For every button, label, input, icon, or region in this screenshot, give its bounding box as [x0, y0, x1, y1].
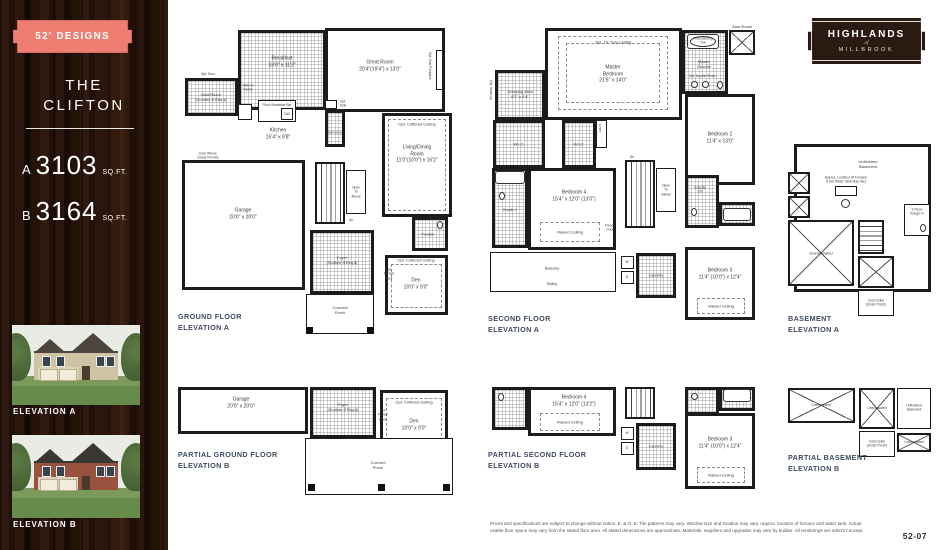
- rough-in-label: 3 Piece Rough-In: [910, 208, 924, 217]
- dressing-area-label: Dressing Area 8'2" x 6'4": [507, 89, 532, 99]
- sidebar: 52' DESIGNS THE CLIFTON A 3103 SQ.FT. B …: [0, 0, 168, 550]
- bedroom-4-label: Bedroom 4 15'4" x 12'0" (13'0"): [552, 190, 595, 203]
- unexcavated-area: [858, 256, 894, 288]
- designs-badge-label: 52' DESIGNS: [35, 31, 110, 42]
- window: [106, 466, 115, 477]
- raised-ceiling-label: Raised Ceiling: [708, 303, 734, 308]
- dishwasher-label: DW: [284, 112, 290, 116]
- brochure-page: 52' DESIGNS THE CLIFTON A 3103 SQ.FT. B …: [0, 0, 941, 550]
- unexcavated-area: [788, 172, 810, 194]
- window: [42, 466, 51, 477]
- unexcavated-label: Unexcavated: [904, 440, 923, 444]
- furnace-label: Approx. Location Of Furnace & Hot Water …: [825, 176, 867, 185]
- sqft-spec-a: A 3103 SQ.FT.: [22, 150, 127, 181]
- sqft-value: 3164: [36, 196, 98, 227]
- window: [96, 466, 105, 477]
- linen-label: Linen: [598, 124, 602, 132]
- plan-basement-a: Unfinished Basement Approx. Location Of …: [788, 142, 936, 342]
- furnace: [835, 186, 857, 196]
- unfinished-basement-label: Unfinished Basement: [906, 404, 922, 413]
- stairs-up: [315, 162, 345, 224]
- living-dining-label: Living/Dining Room 11'0"(10'0") x 16'2": [396, 144, 437, 164]
- master-bedroom-label: Master Bedroom 21'6" x 14'0": [599, 64, 626, 84]
- toilet: [437, 221, 443, 229]
- sink: [702, 81, 709, 88]
- logo-line3: MILLBROOK: [839, 47, 895, 53]
- toilet: [920, 224, 926, 232]
- tree-illustration: [12, 443, 31, 491]
- den-label: Den 10'0" x 9'0": [402, 419, 427, 432]
- sqft-unit: SQ.FT.: [103, 215, 128, 222]
- raised-ceiling-label: Raised Ceiling: [557, 419, 583, 424]
- washer-label: W: [625, 431, 628, 435]
- range: [238, 104, 252, 120]
- variant-letter: A: [22, 162, 31, 177]
- toilet: [691, 208, 697, 216]
- unexcavated-label: Unexcavated: [867, 406, 886, 410]
- window: [106, 356, 115, 367]
- stairs-down: [625, 160, 655, 228]
- variant-letter: B: [22, 208, 31, 223]
- plan-title-partial-ground-b: PARTIAL GROUND FLOOR ELEVATION B: [178, 450, 278, 472]
- glass-shower: [729, 30, 755, 55]
- ensuite-4: [492, 387, 528, 430]
- tree-illustration: [121, 443, 140, 491]
- unfinished-basement-label: Unfinished Basement: [859, 159, 878, 169]
- sqft-unit: SQ.FT.: [103, 169, 128, 176]
- plan-partial-second-b: Bedroom 4 15'4" x 12'0" (13'2") Raised C…: [488, 383, 780, 510]
- bedroom-3-label: Bedroom 3 11'4" (10'0") x 12'4": [699, 437, 742, 450]
- roof-gable: [34, 339, 66, 353]
- tub: [723, 389, 751, 402]
- elevation-b-label: ELEVATION B: [13, 520, 77, 529]
- foyer-label: Foyer (Sunken If Req'd): [326, 255, 357, 265]
- great-room-label: Great Room 20'4"(19'4") x 13'0": [359, 60, 401, 73]
- dryer-label: D: [626, 275, 628, 279]
- front-door: [82, 366, 90, 380]
- divider-line: [26, 128, 134, 129]
- double-sinks-label: Opt. Double Sinks: [689, 74, 716, 78]
- tree-illustration: [121, 333, 140, 381]
- makeup-label: Opt. Make-up: [489, 80, 493, 100]
- up-label: Up: [349, 218, 353, 222]
- island-label: Flush Breakfast Bar: [263, 103, 292, 107]
- open-to-below-label: Open To Below: [662, 184, 671, 197]
- ensuite-4-label: Ensuite 4: [503, 208, 517, 212]
- french-door-label: French Door: [605, 224, 615, 233]
- master-ensuite-label: Master Ensuite: [697, 59, 710, 69]
- unexcavated-label: Unexcavated: [811, 403, 830, 407]
- dryer-label: D: [626, 446, 628, 450]
- french-door-label: Opt. French Door: [384, 268, 394, 281]
- tub: [723, 208, 751, 221]
- water-heater: [841, 199, 850, 208]
- den-label: Den 10'0" x 9'0": [404, 278, 429, 291]
- opt-door-label: Opt. Door: [201, 72, 215, 76]
- balcony-label: Balcony: [545, 265, 559, 270]
- glass-shower-label: Glass Shower: [732, 25, 753, 29]
- unexcavated-label: Unexcavated: [809, 250, 832, 255]
- porch-post: [306, 327, 313, 334]
- french-door-label: Opt. French Door: [378, 409, 388, 422]
- bedroom-4-label: Bedroom 4 15'4" x 12'0" (13'2"): [552, 395, 595, 408]
- tub: [495, 171, 525, 184]
- laundry-label: Laundry: [649, 272, 663, 277]
- porch-label: Covered Porch: [332, 305, 347, 315]
- designs-badge: 52' DESIGNS: [13, 20, 132, 53]
- ensuite-2-3-label: Ensuite 2/3: [695, 186, 706, 195]
- toilet: [499, 192, 505, 200]
- plan-title-basement-a: BASEMENT ELEVATION A: [788, 314, 839, 336]
- garage-doors: [38, 477, 78, 490]
- toilet: [498, 393, 504, 401]
- disclaimer-text: Prices and specifications are subject to…: [490, 520, 868, 534]
- cold-cellar-label: Cold Cellar (Under Porch): [867, 440, 888, 449]
- raised-ceiling-label: Raised Ceiling: [557, 229, 583, 234]
- garage: [182, 160, 305, 290]
- sqft-value: 3103: [36, 150, 98, 181]
- tray-ceiling-label: Opt. 10' Tray Ceiling: [595, 39, 631, 44]
- stairs: [625, 387, 655, 419]
- porch-post: [308, 484, 315, 491]
- plan-title-partial-second-b: PARTIAL SECOND FLOOR ELEVATION B: [488, 450, 586, 472]
- roof-gable: [34, 449, 66, 463]
- model-title: THE CLIFTON: [0, 76, 168, 117]
- fireplace: [436, 50, 443, 90]
- front-door: [82, 476, 90, 490]
- tub-label: Freestanding Tub: [693, 37, 712, 46]
- unexcavated-area: [788, 196, 810, 218]
- plan-title-partial-basement-b: PARTIAL BASEMENT ELEVATION B: [788, 453, 867, 475]
- logo-border: HIGHLANDS of MILLBROOK: [811, 21, 922, 61]
- window: [56, 466, 65, 477]
- opt-sink-label: Opt. Sink: [340, 100, 346, 109]
- open-to-above-label: Open To Above: [351, 186, 360, 199]
- ensuite-2-3: [685, 175, 719, 228]
- sink: [691, 393, 698, 400]
- bedroom-3-label: Bedroom 3 11'4" (10'0") x 12'4": [699, 268, 742, 281]
- porch-post: [378, 484, 385, 491]
- coffered-ceiling-outline: [388, 119, 446, 211]
- plan-title-ground-a: GROUND FLOOR ELEVATION A: [178, 312, 242, 334]
- window: [42, 356, 51, 367]
- porch-post: [367, 327, 374, 334]
- plan-ground-floor-a: Opt. Gas Fireplace Great Room 20'4"(19'4…: [178, 12, 466, 337]
- sink: [691, 81, 698, 88]
- highlands-millbrook-logo: HIGHLANDS of MILLBROOK: [808, 18, 925, 64]
- fireplace-label: Opt. Gas Fireplace: [428, 52, 432, 80]
- powder-label: Powder: [421, 231, 435, 236]
- window: [56, 356, 65, 367]
- breakfast-label: Breakfast 13'0" x 11'2": [268, 56, 295, 69]
- ensuite-2-3: [685, 387, 719, 415]
- porch-post: [443, 484, 450, 491]
- grade-door-label: Door Where Grade Permits: [197, 152, 218, 161]
- laundry-label: Laundry: [649, 443, 663, 448]
- raised-ceiling-label: Raised Ceiling: [708, 472, 734, 477]
- elevation-a-image: [12, 325, 140, 405]
- wic-label: W.I.C.: [514, 141, 525, 146]
- porch-label: Covered Porch: [370, 460, 385, 470]
- plan-partial-ground-b: Garage 20'0" x 20'0" Foyer (Sunken If Re…: [178, 383, 466, 510]
- pantry-label: Walk-In Pantry: [242, 84, 253, 93]
- mud-room-label: Mud Room (Sunken If Req'd): [195, 92, 226, 102]
- foyer-label: Foyer (Sunken If Req'd): [327, 402, 358, 412]
- coffered-label: Opt. Coffered Ceiling: [395, 399, 432, 404]
- washer-label: W: [625, 260, 628, 264]
- window: [96, 356, 105, 367]
- elevation-a-label: ELEVATION A: [13, 407, 76, 416]
- dn-label: Dn: [630, 155, 634, 159]
- plan-title-second-a: SECOND FLOOR ELEVATION A: [488, 314, 551, 336]
- tree-illustration: [12, 333, 31, 381]
- opt-sink: [325, 100, 337, 109]
- servery-label: Servery: [328, 129, 342, 134]
- roof-gable: [70, 443, 116, 463]
- breakfast-area: [238, 30, 326, 110]
- logo-line2: of: [865, 41, 869, 46]
- kitchen-label: Kitchen 15'4" x 9'8": [266, 128, 291, 141]
- sqft-spec-b: B 3164 SQ.FT.: [22, 196, 127, 227]
- roof-gable: [70, 333, 116, 353]
- elevation-b-image: [12, 435, 140, 518]
- logo-line1: HIGHLANDS: [828, 29, 905, 40]
- garage-doors: [38, 367, 78, 380]
- plan-partial-basement-b: Unexcavated Unexcavated Unfinished Basem…: [788, 383, 936, 475]
- railing-label: Railing: [547, 282, 557, 286]
- coffered-label: Opt. Coffered Ceiling: [398, 121, 435, 126]
- garage-label: Garage 20'0" x 20'0": [229, 208, 256, 221]
- foyer: [310, 387, 376, 438]
- bedroom-2-label: Bedroom 2 11'4" x 13'0": [706, 132, 733, 145]
- coffered-label: Opt. Coffered Ceiling: [397, 257, 434, 262]
- wic-label: W.I.C.: [574, 141, 585, 146]
- cold-cellar-label: Cold Cellar (Under Porch): [866, 299, 887, 308]
- garage: [178, 387, 308, 434]
- plan-second-floor-a: Opt. 10' Tray Ceiling Master Bedroom 21'…: [488, 12, 780, 342]
- toilet: [717, 81, 723, 89]
- garage-label: Garage 20'0" x 20'0": [227, 397, 254, 410]
- basement-stairs: [858, 220, 884, 254]
- page-number: 52-07: [903, 531, 927, 541]
